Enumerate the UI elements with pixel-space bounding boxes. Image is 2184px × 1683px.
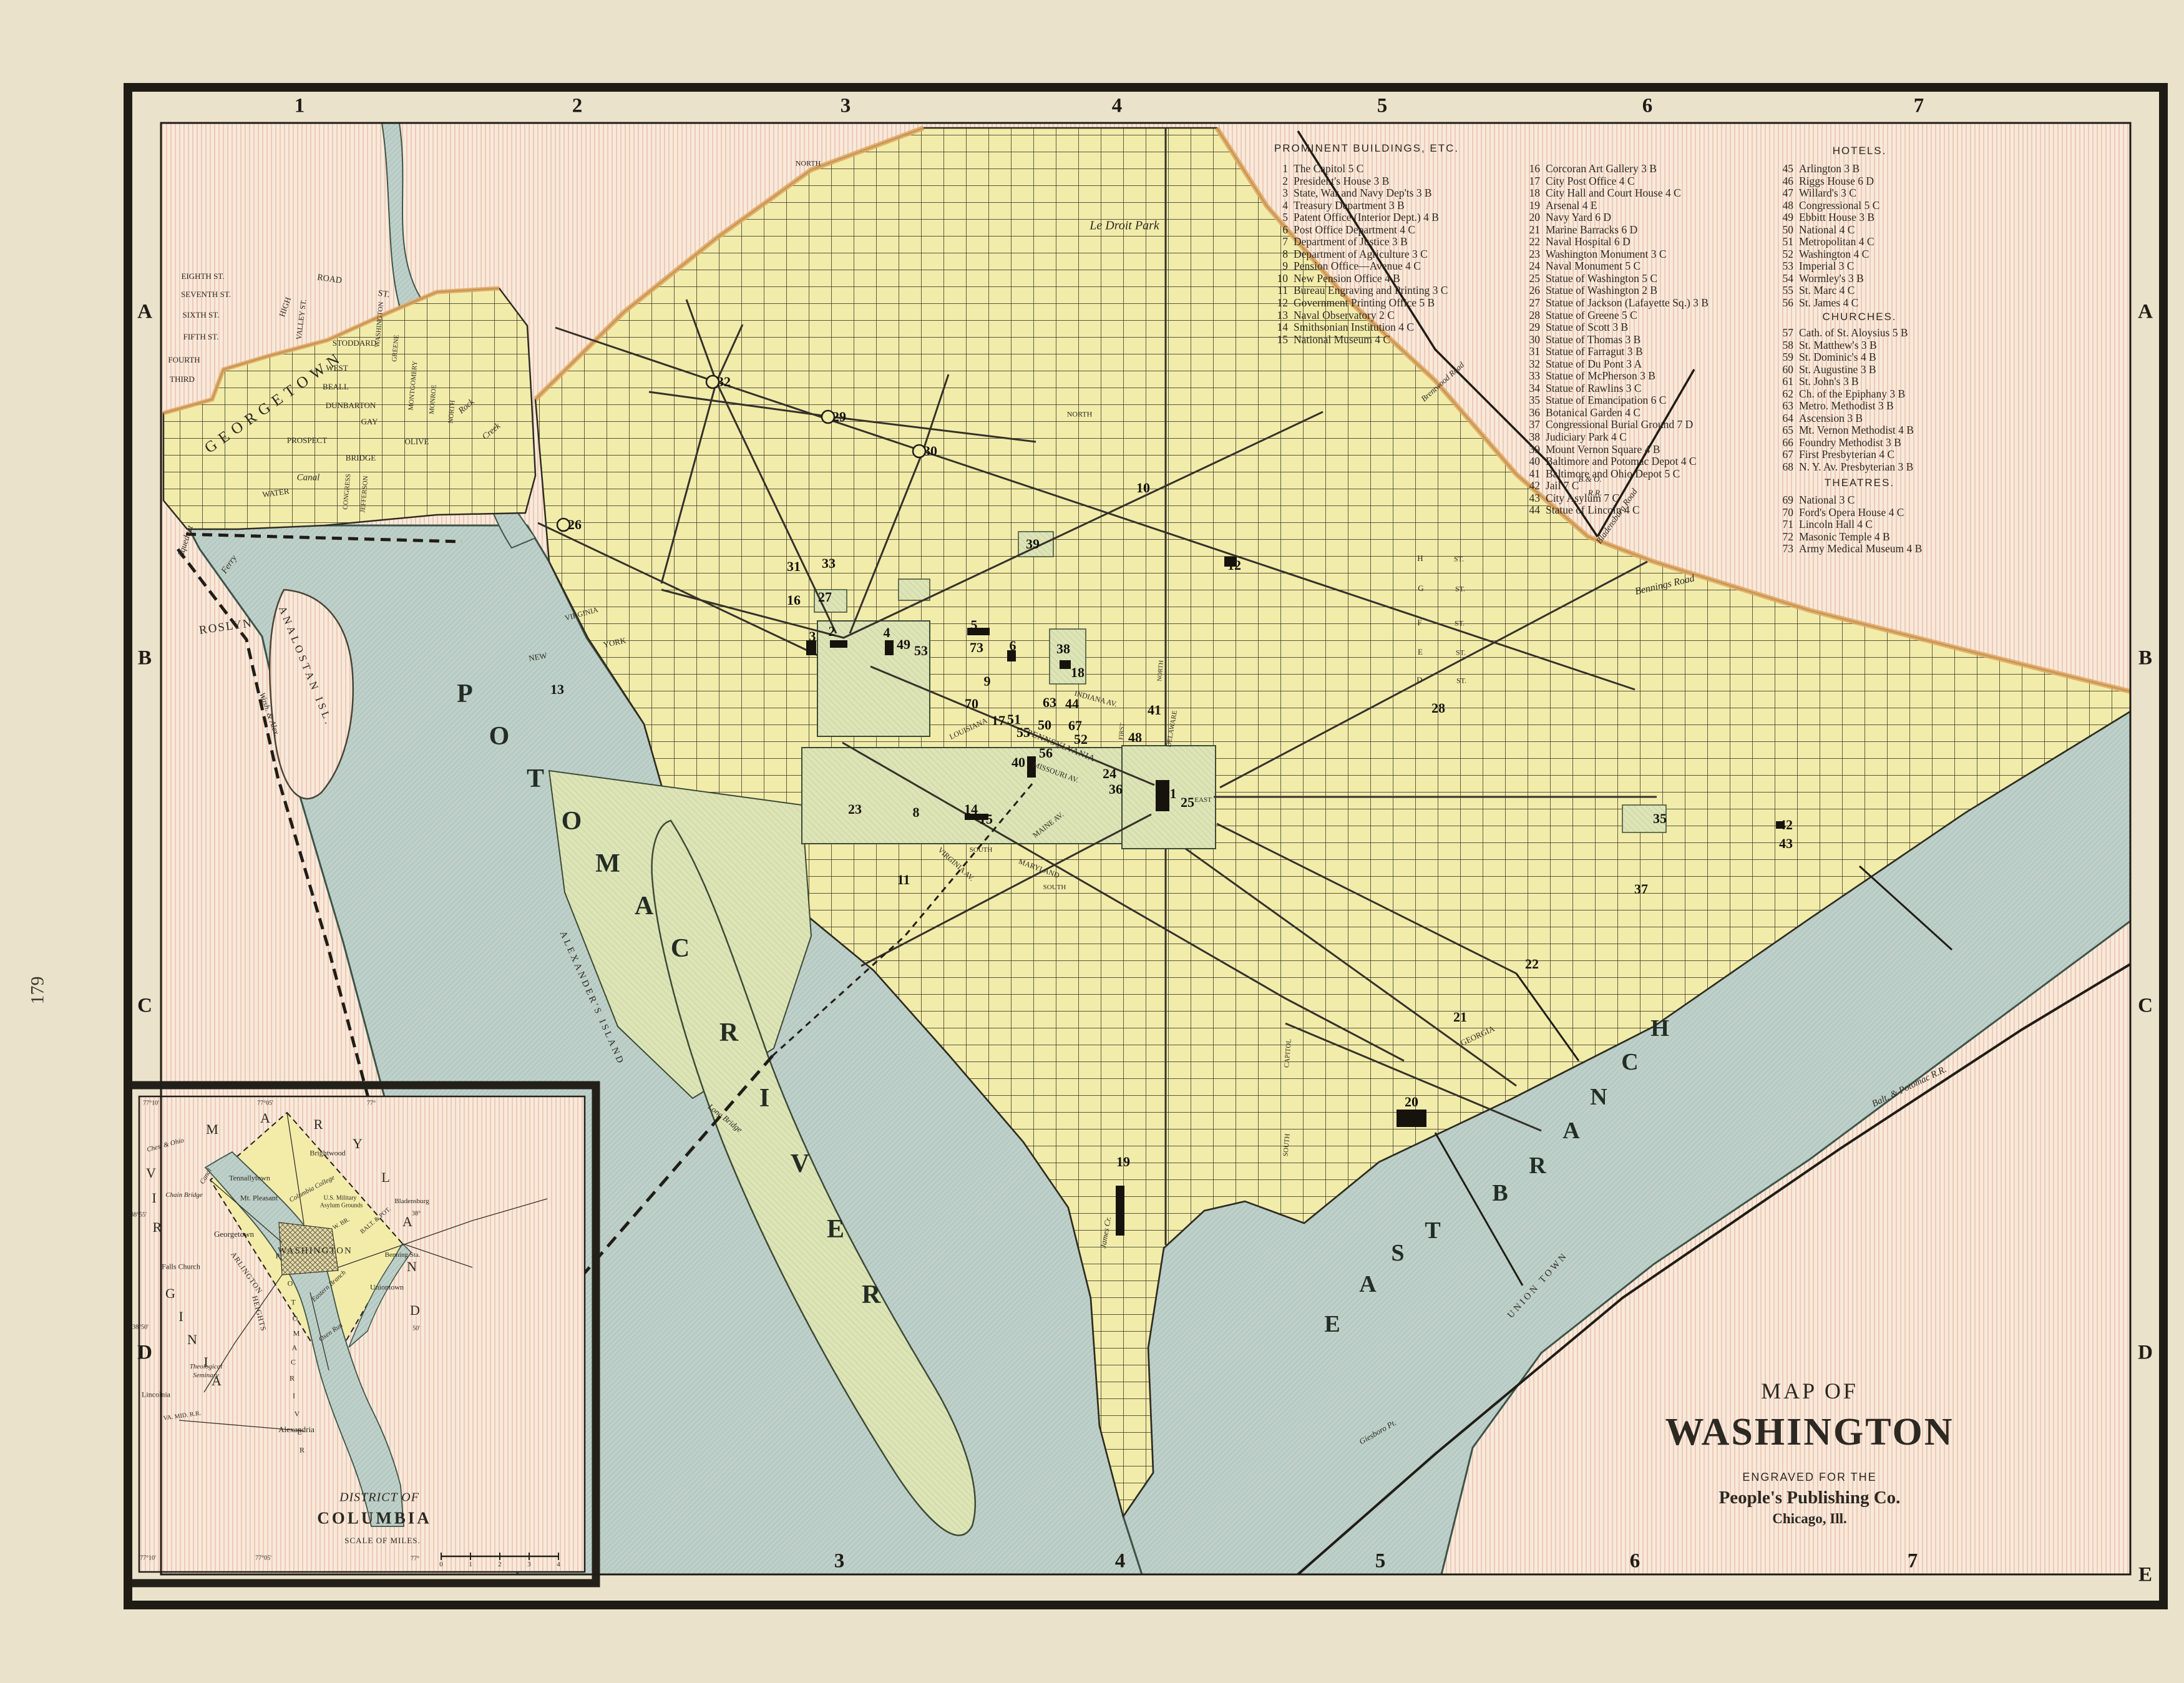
legend-churches-title: CHURCHES. <box>1797 311 1922 323</box>
legend-item-label: Corcoran Art Gallery 3 B <box>1546 163 1657 175</box>
grid-ref-bottom: 3 <box>834 1550 845 1573</box>
grid-ref-right: C <box>2138 995 2153 1018</box>
legend-buildings-col2: 16Corcoran Art Gallery 3 B17City Post Of… <box>1518 163 1709 517</box>
legend-item-label: Department of Agriculture 3 C <box>1294 248 1428 261</box>
legend-item-number: 66 <box>1771 437 1793 449</box>
legend-item-label: St. James 4 C <box>1799 297 1858 310</box>
legend-item-number: 63 <box>1771 400 1793 412</box>
legend-item-label: Ford's Opera House 4 C <box>1799 507 1904 519</box>
legend-item-number: 30 <box>1518 334 1540 346</box>
legend-item-label: Baltimore and Potomac Depot 4 C <box>1546 456 1697 468</box>
legend-item-number: 44 <box>1518 504 1540 517</box>
grid-ref-right: A <box>2138 301 2153 324</box>
legend-item-number: 23 <box>1518 248 1540 261</box>
legend-item: 8Department of Agriculture 3 C <box>1265 248 1448 261</box>
legend-item: 40Baltimore and Potomac Depot 4 C <box>1518 456 1709 468</box>
legend-item-label: Washington Monument 3 C <box>1546 248 1667 261</box>
legend-item: 28Statue of Greene 5 C <box>1518 310 1709 322</box>
legend-item-label: City Hall and Court House 4 C <box>1546 187 1681 200</box>
legend-item-label: Naval Hospital 6 D <box>1546 236 1631 248</box>
legend-hotels-list: 45Arlington 3 B46Riggs House 6 D47Willar… <box>1771 163 1879 310</box>
legend-item-number: 71 <box>1771 519 1793 531</box>
inset-title-2: COLUMBIA <box>317 1509 432 1528</box>
legend-item-number: 25 <box>1518 273 1540 285</box>
legend-item: 31Statue of Farragut 3 B <box>1518 346 1709 358</box>
legend-item: 37Congressional Burial Ground 7 D <box>1518 419 1709 431</box>
legend-item-label: Marine Barracks 6 D <box>1546 224 1637 237</box>
legend-item-label: Government Printing Office 5 B <box>1294 297 1435 310</box>
legend-item-label: Statue of Rawlins 3 C <box>1546 383 1642 395</box>
legend-item-label: Metropolitan 4 C <box>1799 236 1874 248</box>
legend-item-label: St. Dominic's 4 B <box>1799 351 1876 364</box>
legend-item: 9Pension Office—Avenue 4 C <box>1265 260 1448 273</box>
map-title: WASHINGTON <box>1654 1410 1966 1455</box>
legend-buildings-col1: 1The Capitol 5 C2President's House 3 B3S… <box>1265 163 1448 346</box>
legend-item: 46Riggs House 6 D <box>1771 175 1879 188</box>
grid-ref-left: B <box>138 647 152 670</box>
legend-item: 1The Capitol 5 C <box>1265 163 1448 175</box>
legend-item-number: 49 <box>1771 212 1793 224</box>
legend-item: 47Willard's 3 C <box>1771 187 1879 200</box>
legend-item-label: Mt. Vernon Methodist 4 B <box>1799 424 1914 437</box>
grid-ref-right: E <box>2138 1564 2152 1587</box>
legend-item-label: Baltimore and Ohio Depot 5 C <box>1546 468 1680 481</box>
legend-item: 23Washington Monument 3 C <box>1518 248 1709 261</box>
legend-item-number: 5 <box>1265 212 1288 224</box>
legend-item-number: 51 <box>1771 236 1793 248</box>
legend-item-label: Treasury Department 3 B <box>1294 200 1405 212</box>
legend-item-label: Statue of Thomas 3 B <box>1546 334 1640 346</box>
legend-item: 13Naval Observatory 2 C <box>1265 310 1448 322</box>
legend-item: 22Naval Hospital 6 D <box>1518 236 1709 248</box>
legend-item: 4Treasury Department 3 B <box>1265 200 1448 212</box>
legend-item-label: Jail 7 C <box>1546 480 1579 492</box>
grid-ref-bottom: 5 <box>1375 1550 1386 1573</box>
legend-item: 15National Museum 4 C <box>1265 334 1448 346</box>
legend-item: 26Statue of Washington 2 B <box>1518 285 1709 297</box>
legend-item: 38Judiciary Park 4 C <box>1518 431 1709 444</box>
legend-item: 25Statue of Washington 5 C <box>1518 273 1709 285</box>
legend-item: 29Statue of Scott 3 B <box>1518 321 1709 334</box>
legend-item: 18City Hall and Court House 4 C <box>1518 187 1709 200</box>
legend-item-label: Statue of Farragut 3 B <box>1546 346 1643 358</box>
legend-item: 69National 3 C <box>1771 494 1922 507</box>
legend-item-label: State, War and Navy Dep'ts 3 B <box>1294 187 1432 200</box>
legend-item-number: 64 <box>1771 412 1793 425</box>
legend-item: 30Statue of Thomas 3 B <box>1518 334 1709 346</box>
legend-item: 60St. Augustine 3 B <box>1771 364 1914 376</box>
legend-item-number: 42 <box>1518 480 1540 492</box>
legend-item: 57Cath. of St. Aloysius 5 B <box>1771 327 1914 339</box>
legend-item-number: 1 <box>1265 163 1288 175</box>
grid-ref-top: 5 <box>1377 95 1388 118</box>
grid-ref-top: 1 <box>295 95 305 118</box>
legend-item-label: Arsenal 4 E <box>1546 200 1597 212</box>
legend-item-label: Naval Observatory 2 C <box>1294 310 1395 322</box>
legend-item: 24Naval Monument 5 C <box>1518 260 1709 273</box>
legend-item-number: 57 <box>1771 327 1793 339</box>
legend-item-number: 55 <box>1771 285 1793 297</box>
legend-item-number: 72 <box>1771 531 1793 544</box>
legend-item-label: St. Matthew's 3 B <box>1799 339 1877 352</box>
legend-item: 42Jail 7 C <box>1518 480 1709 492</box>
legend-item-label: Statue of Du Pont 3 A <box>1546 358 1642 371</box>
map-title-block: MAP OF WASHINGTON ENGRAVED FOR THE Peopl… <box>1654 1378 1966 1527</box>
legend-item-label: Statue of Greene 5 C <box>1546 310 1637 322</box>
legend-item: 53Imperial 3 C <box>1771 260 1879 273</box>
grid-ref-right: D <box>2138 1342 2153 1365</box>
legend-item-number: 68 <box>1771 461 1793 474</box>
legend-item-label: Congressional 5 C <box>1799 200 1879 212</box>
legend-item: 64Ascension 3 B <box>1771 412 1914 425</box>
legend-item: 21Marine Barracks 6 D <box>1518 224 1709 237</box>
legend-item: 55St. Marc 4 C <box>1771 285 1879 297</box>
legend-item-number: 46 <box>1771 175 1793 188</box>
legend-item: 7Department of Justice 3 B <box>1265 236 1448 248</box>
legend-item-number: 58 <box>1771 339 1793 352</box>
legend-item-label: Masonic Temple 4 B <box>1799 531 1890 544</box>
legend-item: 54Wormley's 3 B <box>1771 273 1879 285</box>
legend-item-number: 2 <box>1265 175 1288 188</box>
legend-item: 14Smithsonian Institution 4 C <box>1265 321 1448 334</box>
legend-item-number: 10 <box>1265 273 1288 285</box>
legend-item: 67First Presbyterian 4 C <box>1771 449 1914 461</box>
legend-item-label: Arlington 3 B <box>1799 163 1860 175</box>
legend-item-label: Statue of Washington 5 C <box>1546 273 1657 285</box>
engraved-for: ENGRAVED FOR THE <box>1654 1471 1966 1484</box>
legend-item: 16Corcoran Art Gallery 3 B <box>1518 163 1709 175</box>
legend-item-label: St. Augustine 3 B <box>1799 364 1876 376</box>
legend-item-number: 61 <box>1771 376 1793 388</box>
legend-item-number: 54 <box>1771 273 1793 285</box>
legend-item-label: First Presbyterian 4 C <box>1799 449 1894 461</box>
legend-item-number: 69 <box>1771 494 1793 507</box>
legend-item-label: Riggs House 6 D <box>1799 175 1874 188</box>
legend-item-number: 35 <box>1518 394 1540 407</box>
legend-item-number: 34 <box>1518 383 1540 395</box>
legend-item-number: 12 <box>1265 297 1288 310</box>
legend-item: 27Statue of Jackson (Lafayette Sq.) 3 B <box>1518 297 1709 310</box>
legend-hotels-title: HOTELS. <box>1797 145 1922 157</box>
legend-item-label: Imperial 3 C <box>1799 260 1854 273</box>
legend-item-label: Naval Monument 5 C <box>1546 260 1640 273</box>
legend-item-label: Statue of McPherson 3 B <box>1546 370 1655 383</box>
inset-title-1: DISTRICT OF <box>339 1491 419 1505</box>
legend-item-number: 37 <box>1518 419 1540 431</box>
legend-item-number: 43 <box>1518 492 1540 505</box>
legend-item: 66Foundry Methodist 3 B <box>1771 437 1914 449</box>
legend-item-label: Statue of Emancipation 6 C <box>1546 394 1666 407</box>
legend-item: 3State, War and Navy Dep'ts 3 B <box>1265 187 1448 200</box>
legend-item: 70Ford's Opera House 4 C <box>1771 507 1922 519</box>
legend-item: 34Statue of Rawlins 3 C <box>1518 383 1709 395</box>
legend-item: 68N. Y. Av. Presbyterian 3 B <box>1771 461 1914 474</box>
legend-item-label: City Post Office 4 C <box>1546 175 1635 188</box>
legend-item-number: 19 <box>1518 200 1540 212</box>
legend-buildings-title: PROMINENT BUILDINGS, ETC. <box>1273 142 1460 155</box>
legend-item: 41Baltimore and Ohio Depot 5 C <box>1518 468 1709 481</box>
legend-item-label: Statue of Scott 3 B <box>1546 321 1628 334</box>
legend-item-number: 26 <box>1518 285 1540 297</box>
legend-item: 65Mt. Vernon Methodist 4 B <box>1771 424 1914 437</box>
legend-item-label: Post Office Department 4 C <box>1294 224 1415 237</box>
legend-item-label: Metro. Methodist 3 B <box>1799 400 1894 412</box>
legend-item: 52Washington 4 C <box>1771 248 1879 261</box>
legend-item: 17City Post Office 4 C <box>1518 175 1709 188</box>
legend-item: 20Navy Yard 6 D <box>1518 212 1709 224</box>
grid-ref-bottom: 4 <box>1115 1550 1126 1573</box>
legend-item: 71Lincoln Hall 4 C <box>1771 519 1922 531</box>
legend-item-label: President's House 3 B <box>1294 175 1389 188</box>
grid-ref-top: 3 <box>841 95 851 118</box>
legend-item: 39Mount Vernon Square 4 B <box>1518 444 1709 456</box>
legend-item-number: 22 <box>1518 236 1540 248</box>
legend-item-number: 38 <box>1518 431 1540 444</box>
legend-churches-list: 57Cath. of St. Aloysius 5 B58St. Matthew… <box>1771 327 1914 474</box>
legend-item-label: Department of Justice 3 B <box>1294 236 1408 248</box>
legend-item-number: 45 <box>1771 163 1793 175</box>
legend-item-label: National Museum 4 C <box>1294 334 1390 346</box>
legend-item: 11Bureau Engraving and Printing 3 C <box>1265 285 1448 297</box>
legend-item-label: Bureau Engraving and Printing 3 C <box>1294 285 1448 297</box>
legend-item-label: Mount Vernon Square 4 B <box>1546 444 1660 456</box>
legend-item-number: 52 <box>1771 248 1793 261</box>
legend-item: 35Statue of Emancipation 6 C <box>1518 394 1709 407</box>
legend-item-label: Lincoln Hall 4 C <box>1799 519 1873 531</box>
legend-item-number: 28 <box>1518 310 1540 322</box>
legend-theatres-title: THEATRES. <box>1797 477 1922 489</box>
legend-item-label: Patent Office (Interior Dept.) 4 B <box>1294 212 1439 224</box>
legend-item-number: 7 <box>1265 236 1288 248</box>
grid-ref-right: B <box>2138 647 2152 670</box>
legend-item-label: St. Marc 4 C <box>1799 285 1855 297</box>
legend-item-number: 48 <box>1771 200 1793 212</box>
legend-item-number: 62 <box>1771 388 1793 401</box>
legend-item-number: 4 <box>1265 200 1288 212</box>
legend-item: 5Patent Office (Interior Dept.) 4 B <box>1265 212 1448 224</box>
legend-item-label: Judiciary Park 4 C <box>1546 431 1627 444</box>
legend-item-number: 27 <box>1518 297 1540 310</box>
legend-item-number: 73 <box>1771 543 1793 555</box>
grid-ref-top: 6 <box>1642 95 1653 118</box>
legend-item-number: 18 <box>1518 187 1540 200</box>
legend-item-number: 3 <box>1265 187 1288 200</box>
legend-item-label: Pension Office—Avenue 4 C <box>1294 260 1421 273</box>
legend-item-label: Ebbitt House 3 B <box>1799 212 1874 224</box>
legend-item-number: 11 <box>1265 285 1288 297</box>
legend-item: 58St. Matthew's 3 B <box>1771 339 1914 352</box>
legend-item-label: N. Y. Av. Presbyterian 3 B <box>1799 461 1913 474</box>
legend-item-number: 40 <box>1518 456 1540 468</box>
legend-item-label: St. John's 3 B <box>1799 376 1859 388</box>
legend-item-number: 9 <box>1265 260 1288 273</box>
legend-item-number: 53 <box>1771 260 1793 273</box>
legend-item-number: 56 <box>1771 297 1793 310</box>
legend-item: 19Arsenal 4 E <box>1518 200 1709 212</box>
legend-item-label: The Capitol 5 C <box>1294 163 1363 175</box>
legend-item: 2President's House 3 B <box>1265 175 1448 188</box>
legend-item-number: 15 <box>1265 334 1288 346</box>
legend-item-number: 65 <box>1771 424 1793 437</box>
legend-item-number: 67 <box>1771 449 1793 461</box>
legend-item-label: Statue of Washington 2 B <box>1546 285 1657 297</box>
grid-ref-top: 4 <box>1112 95 1123 118</box>
legend-item-number: 70 <box>1771 507 1793 519</box>
legend-item-number: 36 <box>1518 407 1540 419</box>
legend-item: 43City Asylum 7 C <box>1518 492 1709 505</box>
legend-item-label: City Asylum 7 C <box>1546 492 1619 505</box>
atlas-page: 179 <box>0 0 2184 1683</box>
legend-item-number: 20 <box>1518 212 1540 224</box>
legend-item-number: 24 <box>1518 260 1540 273</box>
legend-item: 45Arlington 3 B <box>1771 163 1879 175</box>
map-title-prefix: MAP OF <box>1654 1378 1966 1404</box>
legend-item-label: Statue of Jackson (Lafayette Sq.) 3 B <box>1546 297 1709 310</box>
legend-item-label: New Pension Office 4 B <box>1294 273 1400 285</box>
legend-theatres-list: 69National 3 C70Ford's Opera House 4 C71… <box>1771 494 1922 555</box>
legend-item-label: Ch. of the Epiphany 3 B <box>1799 388 1905 401</box>
legend-item: 62Ch. of the Epiphany 3 B <box>1771 388 1914 401</box>
legend-item: 73Army Medical Museum 4 B <box>1771 543 1922 555</box>
legend-item: 72Masonic Temple 4 B <box>1771 531 1922 544</box>
legend-item: 44Statue of Lincoln 4 C <box>1518 504 1709 517</box>
grid-ref-bottom: 6 <box>1630 1550 1640 1573</box>
legend-item-number: 29 <box>1518 321 1540 334</box>
legend-item: 10New Pension Office 4 B <box>1265 273 1448 285</box>
legend-item: 36Botanical Garden 4 C <box>1518 407 1709 419</box>
legend-item: 51Metropolitan 4 C <box>1771 236 1879 248</box>
legend-item-number: 17 <box>1518 175 1540 188</box>
legend-item-number: 6 <box>1265 224 1288 237</box>
legend-item-number: 32 <box>1518 358 1540 371</box>
legend-item-label: Botanical Garden 4 C <box>1546 407 1640 419</box>
inset-scale-label: SCALE OF MILES. <box>344 1536 421 1546</box>
legend-item-number: 50 <box>1771 224 1793 237</box>
legend-item-label: Cath. of St. Aloysius 5 B <box>1799 327 1908 339</box>
grid-ref-top: 2 <box>572 95 583 118</box>
legend-item-label: Navy Yard 6 D <box>1546 212 1611 224</box>
legend-item: 56St. James 4 C <box>1771 297 1879 310</box>
legend-item-label: Washington 4 C <box>1799 248 1869 261</box>
legend-item: 12Government Printing Office 5 B <box>1265 297 1448 310</box>
legend-item-label: Wormley's 3 B <box>1799 273 1864 285</box>
legend-item-number: 8 <box>1265 248 1288 261</box>
legend-item-number: 60 <box>1771 364 1793 376</box>
legend-item-number: 16 <box>1518 163 1540 175</box>
grid-ref-left: D <box>137 1342 152 1365</box>
legend-item-label: Smithsonian Institution 4 C <box>1294 321 1414 334</box>
legend-item-number: 59 <box>1771 351 1793 364</box>
legend-item: 61St. John's 3 B <box>1771 376 1914 388</box>
legend-item: 33Statue of McPherson 3 B <box>1518 370 1709 383</box>
legend-item-number: 39 <box>1518 444 1540 456</box>
legend-item-label: National 4 C <box>1799 224 1855 237</box>
grid-ref-bottom: 7 <box>1908 1550 1918 1573</box>
legend-item-number: 47 <box>1771 187 1793 200</box>
legend-item: 32Statue of Du Pont 3 A <box>1518 358 1709 371</box>
legend-item: 6Post Office Department 4 C <box>1265 224 1448 237</box>
legend-item-label: Army Medical Museum 4 B <box>1799 543 1922 555</box>
legend-item: 50National 4 C <box>1771 224 1879 237</box>
legend-item-label: Willard's 3 C <box>1799 187 1856 200</box>
legend-item-number: 13 <box>1265 310 1288 322</box>
grid-ref-left: C <box>137 995 152 1018</box>
legend-item: 63Metro. Methodist 3 B <box>1771 400 1914 412</box>
legend-item-label: Ascension 3 B <box>1799 412 1863 425</box>
legend-item-number: 41 <box>1518 468 1540 481</box>
publisher: People's Publishing Co. <box>1654 1488 1966 1508</box>
legend-item: 59St. Dominic's 4 B <box>1771 351 1914 364</box>
legend-item: 49Ebbitt House 3 B <box>1771 212 1879 224</box>
legend-item-number: 31 <box>1518 346 1540 358</box>
legend-item-label: Congressional Burial Ground 7 D <box>1546 419 1693 431</box>
grid-ref-left: A <box>137 301 152 324</box>
grid-ref-top: 7 <box>1914 95 1924 118</box>
legend-item-number: 33 <box>1518 370 1540 383</box>
legend-item-label: National 3 C <box>1799 494 1855 507</box>
legend-item-number: 21 <box>1518 224 1540 237</box>
legend-item: 48Congressional 5 C <box>1771 200 1879 212</box>
legend-item-number: 14 <box>1265 321 1288 334</box>
legend-item-label: Statue of Lincoln 4 C <box>1546 504 1640 517</box>
legend-item-label: Foundry Methodist 3 B <box>1799 437 1901 449</box>
publisher-city: Chicago, Ill. <box>1654 1511 1966 1527</box>
